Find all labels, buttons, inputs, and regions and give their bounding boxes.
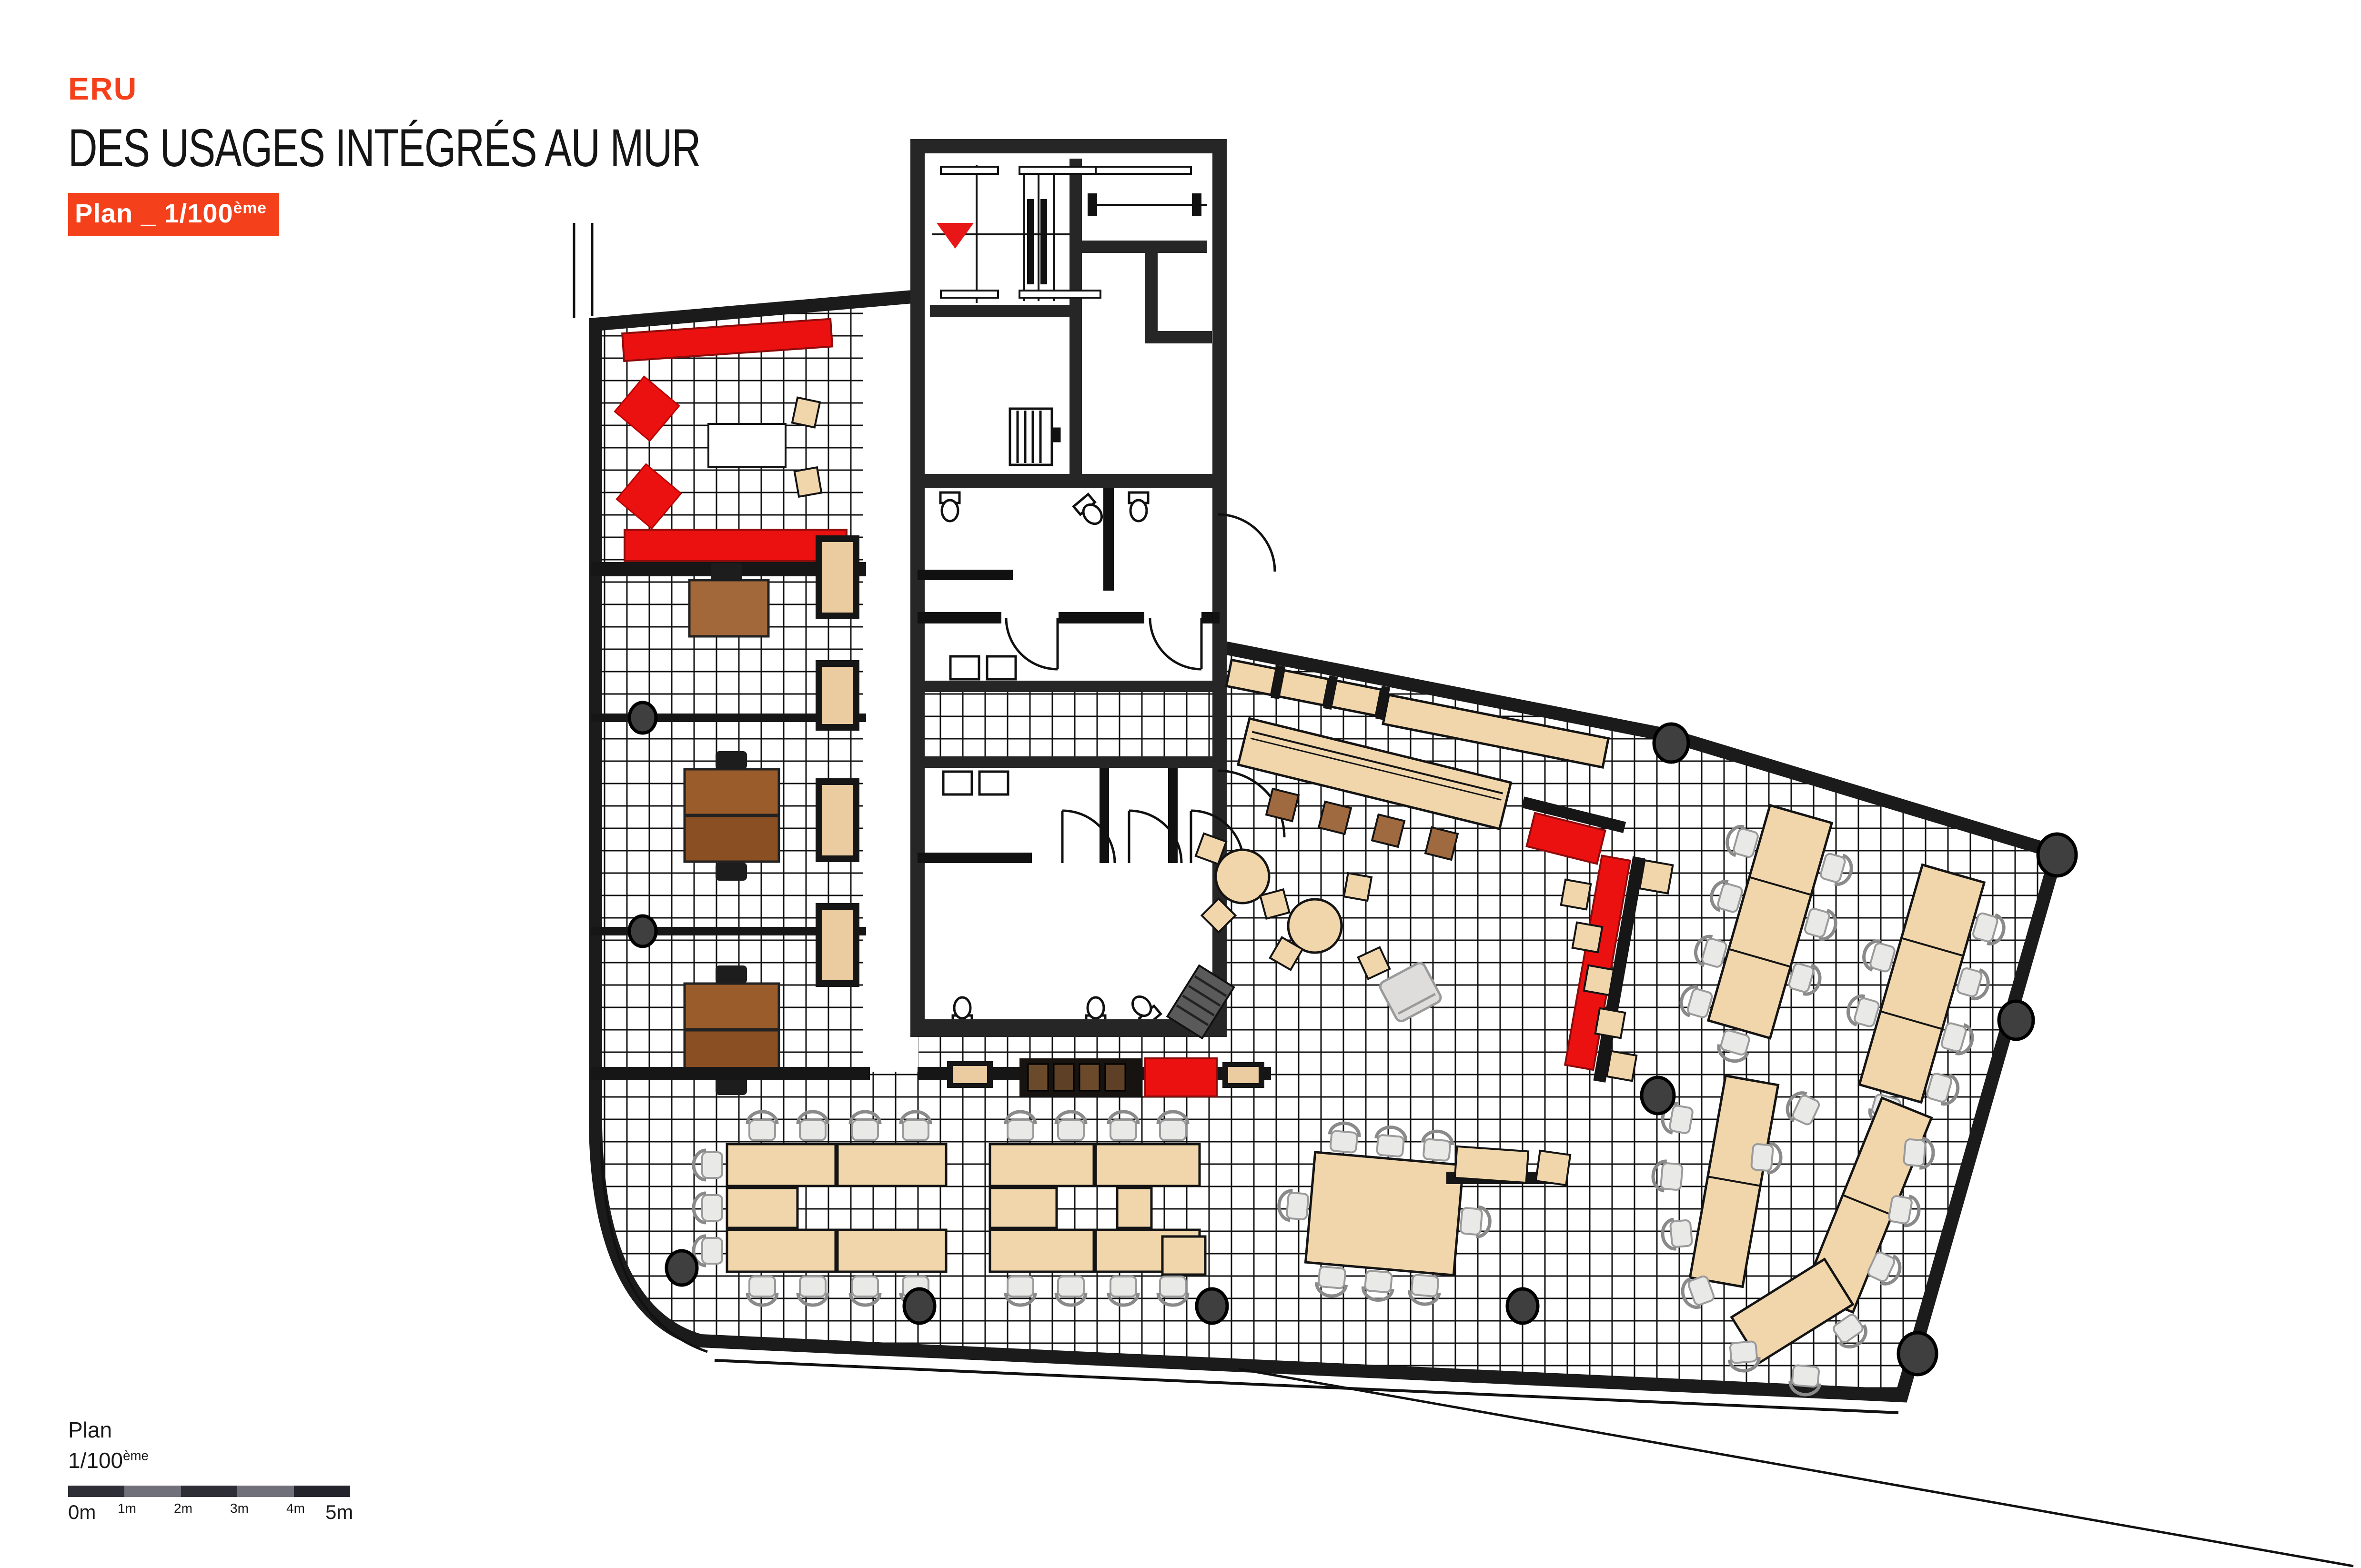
red-wall-bench: [1145, 1058, 1217, 1096]
reception-table: [708, 424, 786, 467]
tick-2m: 2m: [174, 1501, 192, 1516]
desk-brown: [689, 580, 768, 636]
scale-seg-1: [68, 1486, 124, 1497]
badge-prefix: Plan _: [75, 198, 164, 228]
bar-stool: [1266, 789, 1299, 821]
tick-5m: 5m: [325, 1501, 353, 1524]
desk-brown: [685, 816, 779, 862]
bar-stool: [1319, 802, 1351, 834]
stool: [795, 467, 822, 497]
plan-scale-badge: Plan _ 1/100ème: [68, 193, 279, 236]
desk-brown: [685, 769, 779, 815]
scale-seg-5: [294, 1486, 350, 1497]
red-wall-shelf-mid: [625, 530, 847, 561]
stool: [792, 398, 820, 428]
tick-3m: 3m: [230, 1501, 249, 1516]
desk-chair: [716, 965, 747, 984]
desk-chair: [711, 563, 742, 581]
bar-stool: [1372, 814, 1404, 847]
legend-scale-sup: ème: [123, 1448, 149, 1463]
scale-seg-4: [237, 1486, 293, 1497]
tick-4m: 4m: [286, 1501, 305, 1516]
legend-title: Plan: [68, 1417, 430, 1443]
tick-1m: 1m: [118, 1501, 136, 1516]
header: ERU DES USAGES INTÉGRÉS AU MUR Plan _ 1/…: [68, 70, 839, 236]
scale-bar: [68, 1486, 350, 1497]
legend-scale: 1/100ème: [68, 1447, 430, 1473]
desk-chair: [716, 863, 747, 881]
desk-brown: [685, 984, 779, 1029]
desk-chair: [716, 751, 747, 769]
locker-icon: [1010, 409, 1059, 465]
badge-scale: 1/100: [164, 198, 233, 228]
locker-block: [1019, 1058, 1141, 1096]
scale-seg-3: [181, 1486, 237, 1497]
tick-0m: 0m: [68, 1501, 96, 1524]
legend-scale-base: 1/100: [68, 1448, 123, 1473]
scale-seg-2: [124, 1486, 181, 1497]
logo-eru: ERU: [68, 70, 839, 107]
entry-corridor: [863, 286, 918, 1072]
page-title: DES USAGES INTÉGRÉS AU MUR: [68, 118, 700, 179]
bar-stool: [1425, 827, 1458, 860]
dining-table: [1305, 1152, 1463, 1275]
scale-ticks: 0m 1m 2m 3m 4m 5m: [68, 1501, 430, 1529]
legend: Plan 1/100ème 0m 1m 2m 3m 4m 5m: [68, 1417, 430, 1529]
badge-sup: ème: [233, 199, 267, 217]
